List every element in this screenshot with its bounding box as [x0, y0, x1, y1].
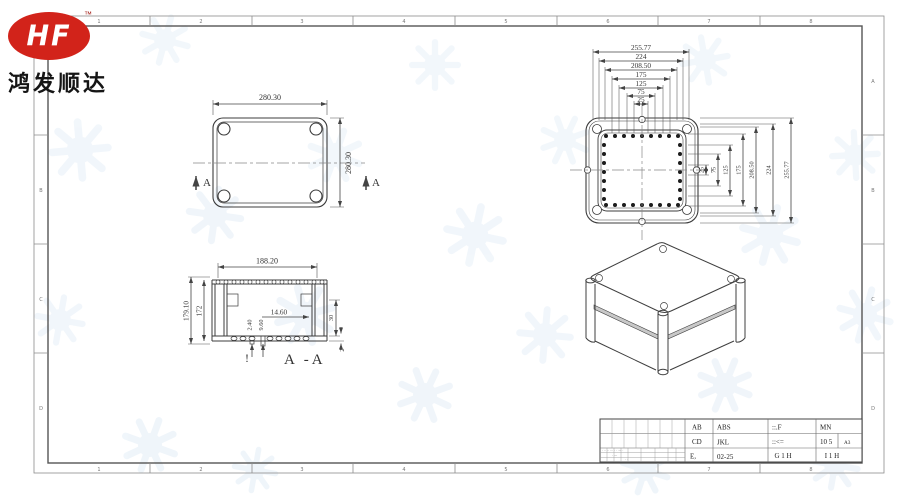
gasket-seam-right [668, 305, 735, 339]
zone-row-label: A [871, 79, 875, 85]
lid-dim: 208.50 [631, 61, 651, 70]
company-name: 鸿发顺达 [8, 66, 108, 98]
dim-240: 2.40 [247, 319, 254, 330]
tb-cell: 02-25 [717, 453, 734, 461]
zone-col-label: 6 [606, 467, 609, 473]
exclaim-mark: ! [245, 351, 249, 365]
zone-col-label: 1 [97, 467, 100, 473]
lid-dim-v: 75 [711, 167, 718, 173]
revision-marks: · ·· ·· ··· · · — · [602, 449, 623, 453]
lid-dim: 255.77 [631, 43, 651, 52]
zone-col-label: 3 [300, 467, 303, 473]
dim-188: 188.20 [256, 257, 278, 266]
tb-cell: G 1 H [774, 452, 791, 460]
zone-col-label: 8 [809, 467, 812, 473]
section-letter-right: A [372, 177, 380, 189]
zone-col-label: 2 [199, 19, 202, 25]
zone-row-label: D [39, 406, 43, 412]
tb-cell: AB [692, 424, 702, 432]
isometric-view [586, 243, 745, 375]
zone-col-label: 2 [199, 467, 202, 473]
company-logo: HF ™ 鸿发顺达 [8, 10, 138, 100]
lid-bead-row [216, 280, 324, 284]
zone-col-label: 3 [300, 19, 303, 25]
zone-row-label: D [871, 406, 875, 412]
zone-col-label: 6 [606, 19, 609, 25]
lid-dim: 25 [637, 95, 645, 104]
dim-172: 172 [195, 305, 204, 316]
lid-dim: 175 [636, 70, 647, 79]
tb-cell-a3: A3 [844, 440, 851, 446]
dim-width: 280.30 [259, 93, 281, 102]
dim-960: 9.60 [258, 319, 265, 330]
dim-height: 280.30 [344, 152, 353, 174]
dim-1460: 14.60 [271, 308, 288, 317]
tb-cell: E, [690, 453, 696, 461]
zone-row-label: C [39, 297, 43, 303]
lid-dim-v: 175 [736, 165, 743, 174]
zone-row-label: C [871, 297, 875, 303]
zone-col-label: 5 [504, 467, 507, 473]
revision-marks: · · [625, 458, 628, 462]
drawing-sheet: 1 2 3 4 5 6 7 8 1 2 3 4 5 6 7 8 A B C D … [0, 0, 900, 500]
dim-30: 30 [328, 315, 335, 321]
lid-dim-v: 208.50 [749, 161, 756, 178]
trademark-symbol: ™ [84, 10, 92, 19]
section-label: A -A [284, 352, 326, 368]
tb-cell: I 1 H [825, 452, 839, 460]
bottom-hole-row [231, 337, 309, 341]
zone-row-label: B [39, 188, 43, 194]
zone-col-label: 4 [402, 467, 405, 473]
zone-col-label: 4 [402, 19, 405, 25]
logo-brand-text: HF [26, 20, 71, 53]
lid-dim: 224 [636, 52, 647, 61]
lid-dim-v: 224 [766, 164, 773, 174]
zone-col-label: 8 [809, 19, 812, 25]
zone-col-label: 5 [504, 19, 507, 25]
zone-col-label: 7 [707, 467, 710, 473]
revision-marks: · — [612, 453, 618, 457]
lid-view: 255.77 224 208.50 175 125 75 25 25 75 12… [570, 43, 794, 240]
dim-179: 179.10 [182, 301, 191, 321]
tb-cell: 10 5 [820, 438, 833, 446]
lid-dim-v: 255.77 [784, 161, 791, 178]
logo-ellipse: HF [8, 12, 90, 60]
tb-cell: JKL [717, 439, 729, 447]
zone-col-label: 7 [707, 19, 710, 25]
tb-cell: CD [692, 438, 702, 446]
top-face [591, 243, 739, 313]
zone-row-label: B [871, 188, 875, 194]
tb-cell: MN [820, 424, 831, 432]
dim-2: 2 [339, 348, 346, 351]
tb-cell: ::<= [772, 438, 784, 446]
lid-dim-v: 25 [699, 167, 706, 173]
gasket-seam-left [594, 305, 658, 339]
title-block: · ·· ·· ··· · · — · · — · · AB ABS ::.F … [600, 419, 862, 462]
corner-cylinder [586, 278, 745, 375]
lid-dim-v: 125 [723, 165, 730, 174]
tb-cell: ::.F [772, 424, 782, 432]
tb-cell: ABS [717, 424, 731, 432]
section-letter-left: A [203, 177, 211, 189]
